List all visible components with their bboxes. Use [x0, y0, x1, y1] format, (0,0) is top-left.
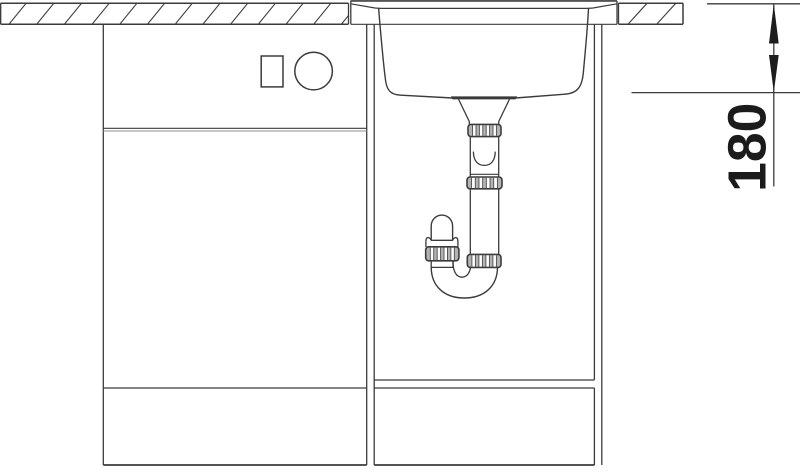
- svg-text:180: 180: [719, 103, 778, 192]
